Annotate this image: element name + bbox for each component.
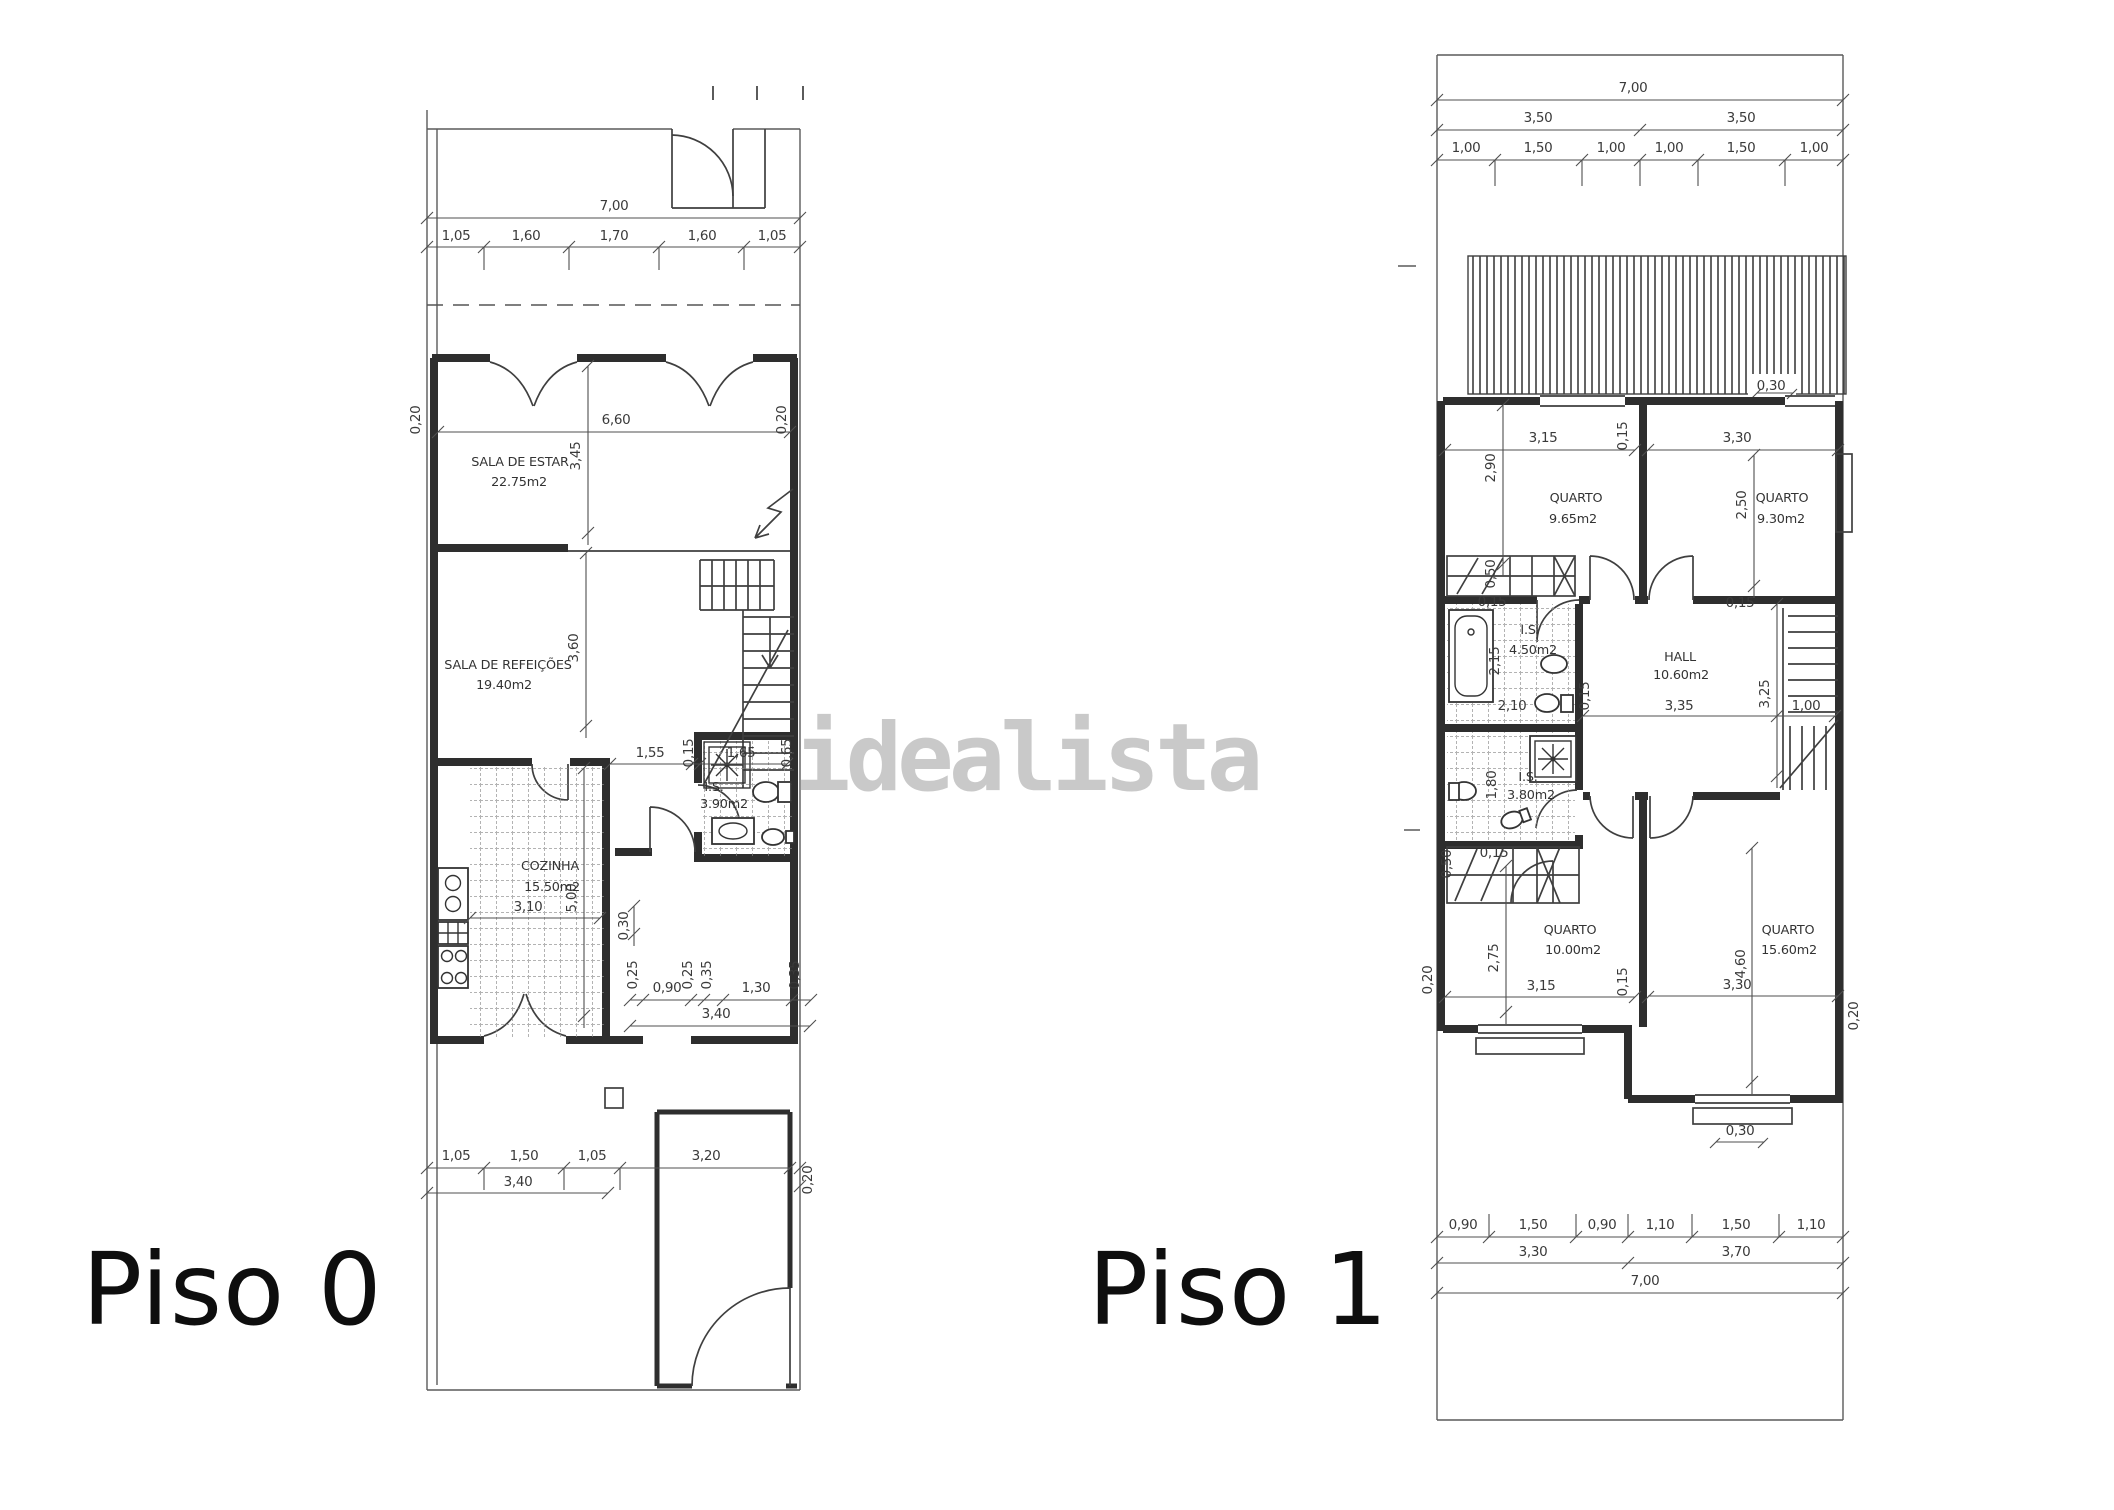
room-name: SALA DE REFEIÇÕES <box>444 657 571 673</box>
dim-label: 1,05 <box>758 228 787 244</box>
window-sill <box>1476 1038 1584 1054</box>
room-area: 10.00m2 <box>1545 943 1601 958</box>
dim-label: 3,50 <box>1727 110 1756 126</box>
dim-label: 1,60 <box>688 228 717 244</box>
entrance-porch <box>672 86 803 208</box>
room-name: I.S. <box>1518 770 1537 785</box>
room-name: SALA DE ESTAR <box>471 455 569 470</box>
dim-label: 2,10 <box>1498 698 1527 714</box>
room-area: 19.40m2 <box>476 678 532 693</box>
room-name: QUARTO <box>1756 491 1809 506</box>
dim-label: 0,50 <box>1483 560 1499 589</box>
dim-label: 1,50 <box>1519 1217 1548 1233</box>
dim-label: 1,70 <box>600 228 629 244</box>
room-area: 4.50m2 <box>1509 643 1557 658</box>
floorplan-piso-0: 7,00 1,05 1,60 1,70 1,60 1,05 0,20 6,60 … <box>408 86 817 1390</box>
dim-label: 0,25 <box>625 961 641 990</box>
dim-label: 1,00 <box>1655 140 1684 156</box>
dim-label: 0,90 <box>1588 1217 1617 1233</box>
dim-label: 0,35 <box>699 961 715 990</box>
dim-label: 1,05 <box>442 1148 471 1164</box>
bidet <box>762 829 784 845</box>
dim-label: 0,15 <box>1726 595 1755 611</box>
window-sill <box>1693 1108 1792 1124</box>
dim-label: 1,10 <box>1646 1217 1675 1233</box>
dim-label: 2,90 <box>1483 454 1499 483</box>
room-name: I.S. <box>1520 623 1539 638</box>
dim-label: 0,30 <box>616 912 632 941</box>
bathroom-lower <box>1447 732 1576 842</box>
page: { "watermark": { "text": "idealista" }, … <box>0 0 2114 1510</box>
toilet-tank <box>1561 695 1573 712</box>
floor-label-piso-1: Piso 1 <box>1088 1240 1389 1340</box>
room-name: QUARTO <box>1550 491 1603 506</box>
dim-label: 1,65 <box>727 745 756 761</box>
yard-post <box>605 1088 623 1108</box>
dim-label: 1,55 <box>636 745 665 761</box>
door-arc <box>1511 861 1553 903</box>
garage-door-arc <box>692 1288 790 1386</box>
floor-label-piso-0: Piso 0 <box>82 1240 383 1340</box>
room-area: 15.60m2 <box>1761 943 1817 958</box>
dim-label: 0,90 <box>653 980 682 996</box>
room-area: 3.80m2 <box>1507 788 1555 803</box>
wardrobe-bottom <box>1447 847 1579 903</box>
room-area: 3.90m2 <box>700 797 748 812</box>
dim-label: 1,10 <box>1797 1217 1826 1233</box>
shower-drain-center <box>725 763 730 768</box>
dim-label: 0,50 <box>1439 850 1455 879</box>
dim-label: 0,20 <box>800 1166 816 1195</box>
room-area: 22.75m2 <box>491 475 547 490</box>
dim-label: 3,40 <box>702 1006 731 1022</box>
dim-label: 1,30 <box>742 980 771 996</box>
entrance-door-arc <box>672 135 733 196</box>
dim-label: 0,15 <box>1480 845 1509 861</box>
dim-label: 4,60 <box>1733 950 1749 979</box>
room-area: 15.50m2 <box>524 880 580 895</box>
toilet-tank <box>778 782 791 802</box>
dim-label: 3,70 <box>1722 1244 1751 1260</box>
dim-label: 7,00 <box>1631 1273 1660 1289</box>
dim-label: 0,15 <box>1615 968 1631 997</box>
room-name: I.S. <box>704 780 723 795</box>
wardrobe-marks <box>1447 847 1579 903</box>
dim-label: 2,15 <box>1487 647 1503 676</box>
dim-label: 0,15 <box>1478 594 1507 610</box>
room-area: 9.30m2 <box>1757 512 1805 527</box>
dim-label: 1,80 <box>1484 771 1500 800</box>
toilet-tank <box>1449 783 1459 800</box>
dim-label: 0,25 <box>680 961 696 990</box>
room-name: QUARTO <box>1544 923 1597 938</box>
dim-label: 3,15 <box>1529 430 1558 446</box>
dim-label: 3,15 <box>1527 978 1556 994</box>
dim-label: 1,50 <box>1722 1217 1751 1233</box>
bidet-mount <box>786 831 794 843</box>
dim-label: 1,50 <box>1524 140 1553 156</box>
wardrobe-marks <box>1447 556 1575 596</box>
direction-arrow <box>755 489 793 538</box>
dim-label: 0,20 <box>1420 966 1436 995</box>
toilet <box>753 782 779 802</box>
wardrobe-top <box>1447 556 1575 596</box>
dim-label: 2,75 <box>1486 944 1502 973</box>
dim-label: 0,20 <box>774 406 790 435</box>
dim-label: 0,20 <box>1846 1002 1862 1031</box>
room-area: 10.60m2 <box>1653 668 1709 683</box>
dim-label: 3,20 <box>692 1148 721 1164</box>
dimension-lines-top <box>1431 94 1849 186</box>
dim-label: 0,15 <box>681 739 697 768</box>
room-name: COZINHA <box>521 859 580 874</box>
room-area: 9.65m2 <box>1549 512 1597 527</box>
garage-walls <box>657 1112 797 1386</box>
dim-label: 1,00 <box>1597 140 1626 156</box>
shower-drain-center <box>1551 757 1556 762</box>
dim-label: 7,00 <box>1619 80 1648 96</box>
dim-label: 7,00 <box>600 198 629 214</box>
dim-label: 3,10 <box>514 899 543 915</box>
toilet <box>1535 694 1559 712</box>
dim-label: 1,05 <box>442 228 471 244</box>
dim-label: 1,50 <box>510 1148 539 1164</box>
dim-label: 0,30 <box>1757 378 1786 394</box>
dim-label: 0,15 <box>1615 422 1631 451</box>
dim-label: 1,50 <box>1727 140 1756 156</box>
terrace-roof-hatch <box>1468 256 1846 394</box>
room-name: QUARTO <box>1762 923 1815 938</box>
room-name: HALL <box>1664 650 1697 665</box>
dim-label: 1,00 <box>1452 140 1481 156</box>
dim-label: 3,25 <box>1757 680 1773 709</box>
dim-label: 0,30 <box>1726 1123 1755 1139</box>
dim-label: 0,65 <box>779 739 795 768</box>
dim-label: 0,15 <box>1577 682 1593 711</box>
dim-label: 1,00 <box>1792 698 1821 714</box>
dim-label: 0,35 <box>787 961 803 990</box>
dim-label: 3,40 <box>504 1174 533 1190</box>
dim-label: 2,50 <box>1734 491 1750 520</box>
dim-label: 1,05 <box>578 1148 607 1164</box>
dim-label: 0,90 <box>1449 1217 1478 1233</box>
dim-label: 3,30 <box>1723 430 1752 446</box>
dim-label: 3,45 <box>568 442 584 471</box>
floorplan-piso-1: 7,00 3,50 3,50 1,00 1,50 1,00 1,00 1,50 … <box>1398 55 1862 1420</box>
floorplan-image: 7,00 1,05 1,60 1,70 1,60 1,05 0,20 6,60 … <box>0 0 2114 1510</box>
dim-label: 1,00 <box>1800 140 1829 156</box>
dim-label: 0,20 <box>408 406 424 435</box>
dim-label: 6,60 <box>602 412 631 428</box>
idealista-watermark: idealista <box>794 712 1258 806</box>
dim-label: 3,35 <box>1665 698 1694 714</box>
dim-label: 3,30 <box>1519 1244 1548 1260</box>
dim-label: 3,50 <box>1524 110 1553 126</box>
dim-label: 1,60 <box>512 228 541 244</box>
